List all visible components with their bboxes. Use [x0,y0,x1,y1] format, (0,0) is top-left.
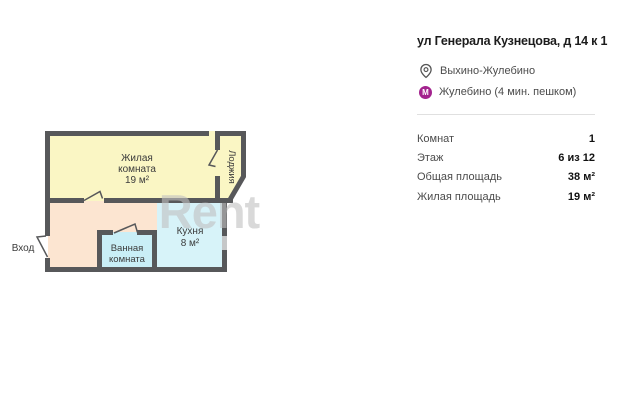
living-room-area-label: 19 м² [125,175,150,186]
wall-divider-left [45,198,84,203]
metro-row: М Жулебино (4 мин. пешком) [419,84,576,100]
bathroom-label-line2: комната [109,254,146,265]
bathroom-label-line1: Ванная [111,243,144,254]
specs-table: Комнат 1 Этаж 6 из 12 Общая площадь 38 м… [417,129,595,206]
spec-label: Жилая площадь [417,191,501,203]
district-name: Выхино-Жулебино [440,65,535,77]
spec-value: 38 м² [568,171,595,183]
kitchen-window [222,236,227,250]
entrance-door-swing [37,236,48,257]
spec-label: Комнат [417,133,454,145]
wall-bath-left [97,230,102,272]
section-divider [417,114,595,115]
metro-icon: М [419,86,432,99]
wall-left-upper [45,131,50,236]
spec-value: 1 [589,133,595,145]
listing-card: Жилая комната 19 м² Лоджия Ванная комнат… [0,0,626,417]
location-pin-icon [419,63,433,79]
loggia-label: Лоджия [226,150,237,184]
spec-value: 19 м² [568,191,595,203]
wall-loggia-top [215,136,220,150]
metro-station: Жулебино (4 мин. пешком) [439,86,576,98]
district-row: Выхино-Жулебино [419,63,535,79]
spec-label: Общая площадь [417,171,502,183]
spec-row-total-area: Общая площадь 38 м² [417,168,595,187]
floorplan-svg: Жилая комната 19 м² Лоджия Ванная комнат… [0,0,320,300]
kitchen-area-label: 8 м² [181,238,200,249]
floorplan-image: Жилая комната 19 м² Лоджия Ванная комнат… [0,0,320,300]
spec-label: Этаж [417,152,443,164]
living-room-label-line1: Жилая [121,153,153,164]
spec-value: 6 из 12 [558,152,595,164]
wall-bottom [45,267,227,272]
spec-row-living-area: Жилая площадь 19 м² [417,187,595,206]
rent-watermark: Rent [159,185,261,238]
entrance-label: Вход [12,243,35,254]
spec-row-floor: Этаж 6 из 12 [417,148,595,167]
listing-title: ул Генерала Кузнецова, д 14 к 1 [417,34,617,48]
wall-bath-right [152,230,157,272]
wall-top-left-segment [45,131,209,136]
living-room-label-line2: комната [118,164,156,175]
spec-row-rooms: Комнат 1 [417,129,595,148]
